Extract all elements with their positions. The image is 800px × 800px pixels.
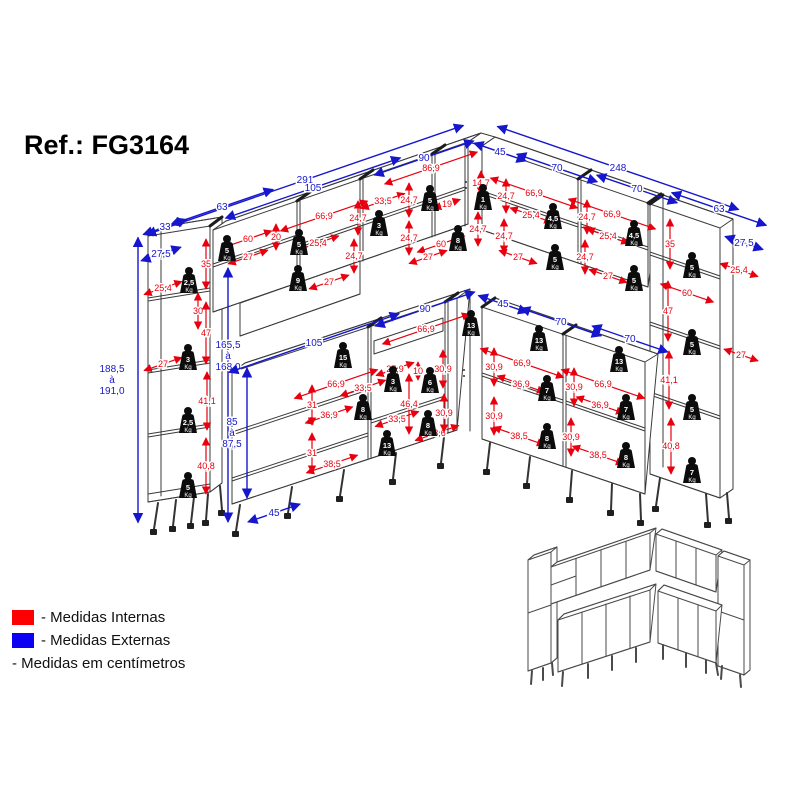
svg-text:13: 13 <box>615 357 623 366</box>
svg-text:Kg: Kg <box>622 463 629 469</box>
svg-text:248: 248 <box>610 163 627 174</box>
svg-text:Kg: Kg <box>615 367 622 373</box>
svg-text:Kg: Kg <box>339 363 346 369</box>
svg-text:31: 31 <box>307 448 317 458</box>
svg-text:27,5: 27,5 <box>734 238 754 249</box>
svg-text:24,7: 24,7 <box>400 233 418 243</box>
svg-text:Kg: Kg <box>389 387 396 393</box>
svg-text:66,9: 66,9 <box>417 324 435 334</box>
svg-text:Kg: Kg <box>295 250 302 256</box>
svg-text:46,4: 46,4 <box>400 399 418 409</box>
svg-text:45: 45 <box>494 147 506 158</box>
svg-text:30,9: 30,9 <box>562 432 580 442</box>
svg-text:188,5à191,0: 188,5à191,0 <box>99 364 124 397</box>
svg-text:5: 5 <box>225 246 229 255</box>
svg-text:2,5: 2,5 <box>183 418 193 427</box>
svg-text:9: 9 <box>296 276 300 285</box>
svg-text:36,9: 36,9 <box>512 379 530 389</box>
svg-text:Kg: Kg <box>688 273 695 279</box>
legend-external: - Medidas Externas <box>12 629 185 652</box>
svg-text:35: 35 <box>201 259 211 269</box>
svg-text:30,9: 30,9 <box>485 411 503 421</box>
svg-text:33,5: 33,5 <box>374 196 392 206</box>
svg-text:47: 47 <box>663 306 673 316</box>
legend-external-swatch <box>12 633 34 648</box>
svg-text:47: 47 <box>201 328 211 338</box>
svg-text:38,5: 38,5 <box>323 459 341 469</box>
svg-text:36,9: 36,9 <box>591 400 609 410</box>
svg-text:19: 19 <box>442 199 452 209</box>
svg-text:6: 6 <box>428 378 432 387</box>
assembled-preview <box>528 528 750 687</box>
svg-text:30,9: 30,9 <box>435 408 453 418</box>
svg-text:5: 5 <box>297 240 301 249</box>
svg-text:4,5: 4,5 <box>548 214 558 223</box>
svg-text:8: 8 <box>456 236 460 245</box>
svg-text:5: 5 <box>186 483 190 492</box>
svg-text:66,9: 66,9 <box>594 379 612 389</box>
svg-text:Kg: Kg <box>426 388 433 394</box>
legend-internal-swatch <box>12 610 34 625</box>
svg-text:38,5: 38,5 <box>510 431 528 441</box>
svg-text:24,7: 24,7 <box>495 231 513 241</box>
dimension: 188,5à191,0 <box>99 238 138 523</box>
svg-text:60: 60 <box>243 234 253 244</box>
svg-text:Kg: Kg <box>630 286 637 292</box>
svg-text:24,7: 24,7 <box>349 213 367 223</box>
svg-text:Kg: Kg <box>184 365 191 371</box>
svg-text:60: 60 <box>436 239 446 249</box>
svg-text:Kg: Kg <box>184 493 191 499</box>
svg-text:Kg: Kg <box>688 415 695 421</box>
svg-text:41,1: 41,1 <box>660 375 678 385</box>
svg-text:Kg: Kg <box>543 444 550 450</box>
svg-text:8: 8 <box>624 453 628 462</box>
svg-text:Kg: Kg <box>535 346 542 352</box>
svg-text:27: 27 <box>736 350 746 360</box>
svg-text:24,7: 24,7 <box>578 212 596 222</box>
svg-text:24,7: 24,7 <box>345 251 363 261</box>
svg-text:3: 3 <box>186 355 190 364</box>
svg-text:25,4: 25,4 <box>522 210 540 220</box>
svg-text:Kg: Kg <box>185 288 192 294</box>
svg-text:66,9: 66,9 <box>327 379 345 389</box>
svg-text:70: 70 <box>624 334 636 345</box>
svg-text:60: 60 <box>682 288 692 298</box>
svg-text:36,9: 36,9 <box>320 410 338 420</box>
svg-text:Kg: Kg <box>375 231 382 237</box>
svg-text:41,1: 41,1 <box>198 396 216 406</box>
svg-text:4,5: 4,5 <box>629 231 639 240</box>
svg-text:8: 8 <box>545 434 549 443</box>
svg-text:10: 10 <box>413 366 423 376</box>
svg-text:66,9: 66,9 <box>513 358 531 368</box>
svg-text:2,5: 2,5 <box>184 278 194 287</box>
svg-text:Kg: Kg <box>383 451 390 457</box>
svg-text:24,7: 24,7 <box>497 191 515 201</box>
svg-text:66,9: 66,9 <box>315 211 333 221</box>
svg-text:70: 70 <box>551 163 563 174</box>
svg-text:Kg: Kg <box>426 206 433 212</box>
svg-text:27,5: 27,5 <box>151 249 171 260</box>
svg-text:25,4: 25,4 <box>154 283 172 293</box>
svg-text:Kg: Kg <box>479 205 486 211</box>
svg-text:8: 8 <box>361 405 365 414</box>
svg-text:Kg: Kg <box>688 350 695 356</box>
svg-text:7: 7 <box>545 386 549 395</box>
svg-text:25,4: 25,4 <box>309 238 327 248</box>
svg-text:30,9: 30,9 <box>434 364 452 374</box>
svg-text:33,5: 33,5 <box>354 383 372 393</box>
svg-text:33,5: 33,5 <box>388 414 406 424</box>
svg-text:8: 8 <box>426 421 430 430</box>
svg-text:5: 5 <box>632 276 636 285</box>
svg-text:25,4: 25,4 <box>599 231 617 241</box>
svg-text:86,9: 86,9 <box>422 163 440 173</box>
svg-text:Kg: Kg <box>424 431 431 437</box>
svg-text:20: 20 <box>271 232 281 242</box>
svg-text:25,4: 25,4 <box>730 265 748 275</box>
svg-text:Kg: Kg <box>184 428 191 434</box>
svg-text:Kg: Kg <box>223 256 230 262</box>
svg-text:Kg: Kg <box>551 265 558 271</box>
svg-text:38,5: 38,5 <box>589 450 607 460</box>
svg-text:30,9: 30,9 <box>485 362 503 372</box>
svg-text:1: 1 <box>481 195 485 204</box>
svg-text:Kg: Kg <box>630 241 637 247</box>
svg-text:Kg: Kg <box>359 415 366 421</box>
svg-text:27: 27 <box>158 359 168 369</box>
svg-text:70: 70 <box>555 317 567 328</box>
legend-internal-label: - Medidas Internas <box>41 609 165 626</box>
svg-text:30: 30 <box>193 306 203 316</box>
svg-text:27: 27 <box>324 277 334 287</box>
svg-text:3: 3 <box>391 377 395 386</box>
svg-text:5: 5 <box>690 405 694 414</box>
svg-text:Kg: Kg <box>622 415 629 421</box>
svg-text:66,9: 66,9 <box>525 188 543 198</box>
svg-text:35: 35 <box>665 239 675 249</box>
svg-text:63: 63 <box>713 204 725 215</box>
svg-text:105: 105 <box>306 338 323 349</box>
svg-text:40,8: 40,8 <box>197 461 215 471</box>
legend-unit-note: - Medidas em centímetros <box>12 655 185 672</box>
dimension: 45 <box>248 504 300 522</box>
svg-text:Kg: Kg <box>454 246 461 252</box>
svg-text:3: 3 <box>377 221 381 230</box>
svg-text:7: 7 <box>690 468 694 477</box>
svg-text:Kg: Kg <box>543 396 550 402</box>
svg-text:27: 27 <box>603 271 613 281</box>
svg-text:5: 5 <box>428 196 432 205</box>
svg-text:63: 63 <box>216 202 228 213</box>
kitchen-dimension-diagram: 291105633327,5904570248706327,5188,5à191… <box>0 0 800 800</box>
svg-text:45: 45 <box>497 299 509 310</box>
svg-text:Kg: Kg <box>294 286 301 292</box>
svg-text:31: 31 <box>307 400 317 410</box>
svg-text:24,7: 24,7 <box>469 224 487 234</box>
svg-text:Kg: Kg <box>688 478 695 484</box>
svg-text:27: 27 <box>423 252 433 262</box>
legend: - Medidas Internas - Medidas Externas - … <box>12 606 185 672</box>
svg-text:13: 13 <box>535 336 543 345</box>
svg-text:13: 13 <box>383 441 391 450</box>
dimension: 27 <box>499 250 537 263</box>
legend-external-label: - Medidas Externas <box>41 632 170 649</box>
svg-text:15: 15 <box>339 353 347 362</box>
svg-text:5: 5 <box>690 340 694 349</box>
svg-text:24,7: 24,7 <box>400 195 418 205</box>
svg-text:5: 5 <box>690 263 694 272</box>
svg-text:27: 27 <box>513 252 523 262</box>
svg-text:Kg: Kg <box>549 224 556 230</box>
page-title: Ref.: FG3164 <box>24 130 189 161</box>
svg-text:90: 90 <box>419 304 431 315</box>
svg-text:13: 13 <box>467 321 475 330</box>
legend-internal: - Medidas Internas <box>12 606 185 629</box>
svg-text:27: 27 <box>243 252 253 262</box>
svg-text:24,7: 24,7 <box>576 252 594 262</box>
svg-text:5: 5 <box>553 255 557 264</box>
svg-text:66,9: 66,9 <box>603 209 621 219</box>
svg-text:70: 70 <box>631 184 643 195</box>
svg-text:40,8: 40,8 <box>662 441 680 451</box>
svg-text:105: 105 <box>305 183 322 194</box>
diagram-page: 291105633327,5904570248706327,5188,5à191… <box>0 0 800 800</box>
svg-text:30,9: 30,9 <box>565 382 583 392</box>
svg-text:Kg: Kg <box>467 331 474 337</box>
dimension: 27 <box>409 250 447 263</box>
svg-text:33: 33 <box>159 222 171 233</box>
svg-text:7: 7 <box>624 405 628 414</box>
svg-text:45: 45 <box>268 508 280 519</box>
